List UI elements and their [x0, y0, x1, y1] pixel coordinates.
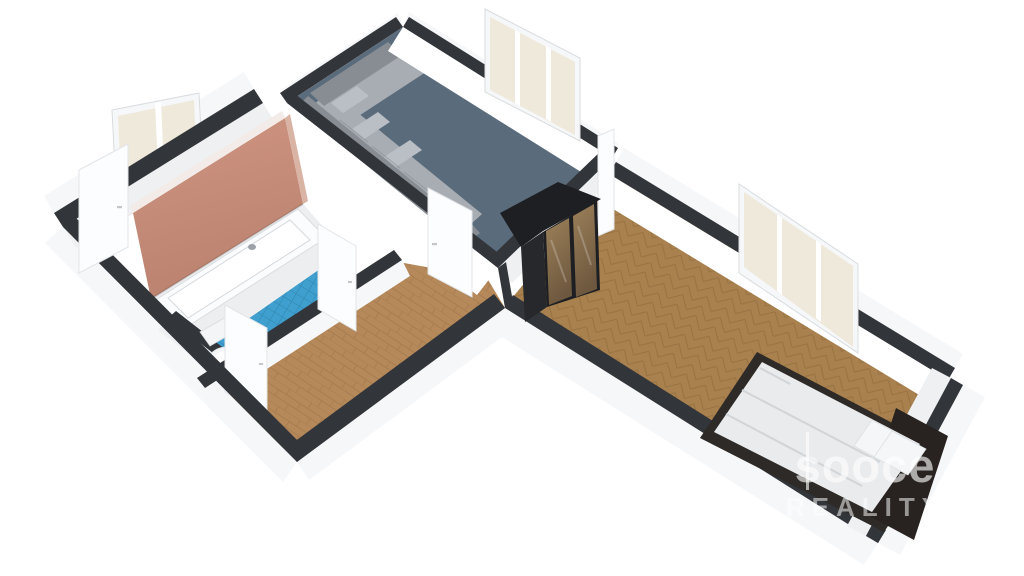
wardrobe-door-right	[573, 204, 597, 297]
door-handle	[348, 281, 352, 283]
bedroom-door	[598, 129, 614, 236]
watermark-logo: sooce	[795, 439, 936, 492]
watermark-logo-bar	[806, 432, 809, 490]
watermark-sub: REALITY	[786, 492, 946, 522]
window-mullion	[546, 46, 551, 122]
floorplan-render: sooce REALITY	[0, 0, 1024, 576]
window-mullion	[515, 30, 520, 106]
door-handle	[117, 206, 122, 208]
window-mullion	[777, 214, 782, 295]
window-mullion	[816, 240, 821, 322]
door-handle	[432, 243, 437, 245]
watermark: sooce REALITY	[786, 432, 946, 522]
wardrobe-side	[521, 232, 547, 322]
bathtub-faucet	[248, 244, 256, 250]
floorplan-svg: sooce REALITY	[0, 0, 1024, 576]
entry-door	[79, 144, 128, 273]
door-handle	[259, 363, 263, 365]
